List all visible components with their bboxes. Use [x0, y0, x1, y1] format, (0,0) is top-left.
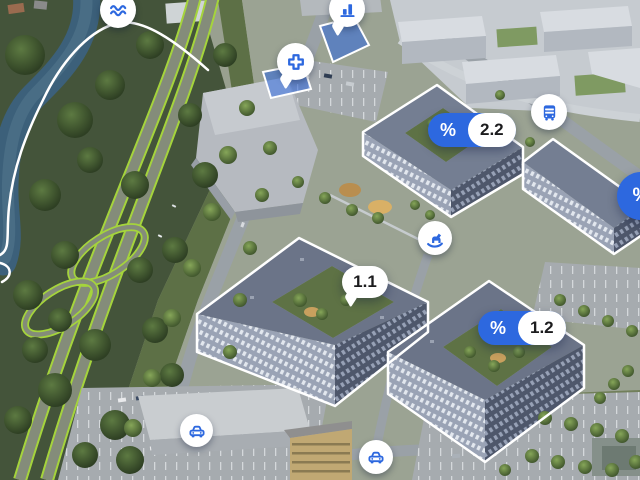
discount-badge-1-2[interactable]: % 1.2 [478, 311, 566, 345]
pin-medical[interactable] [277, 43, 314, 80]
medical-cross-icon [285, 51, 307, 73]
rocking-horse-icon [424, 227, 446, 249]
percent-icon: % [478, 318, 518, 339]
block-label-1-1[interactable]: 1.1 [342, 266, 388, 298]
percent-icon: % [633, 185, 640, 207]
pin-parking-west[interactable] [180, 414, 213, 447]
masterplan-map[interactable]: % 2.2 1.1 % 1.2 % [0, 0, 640, 480]
pin-playground[interactable] [418, 221, 452, 255]
discount-badge-2-2[interactable]: % 2.2 [428, 113, 516, 147]
bus-icon [539, 102, 560, 123]
pin-parking-south[interactable] [359, 440, 393, 474]
tan-office-building [284, 421, 352, 480]
car-icon [186, 420, 208, 442]
badge-value-1-2: 1.2 [518, 311, 566, 345]
warehouse-building [138, 388, 312, 455]
balloon-value-1-1: 1.1 [353, 272, 377, 292]
bar-chart-icon [337, 0, 358, 20]
percent-icon: % [428, 120, 468, 141]
waves-icon [108, 0, 129, 21]
car-icon [365, 446, 387, 468]
pin-bus-stop[interactable] [531, 94, 567, 130]
aerial-photo-scene [0, 0, 640, 480]
badge-value-2-2: 2.2 [468, 113, 516, 147]
